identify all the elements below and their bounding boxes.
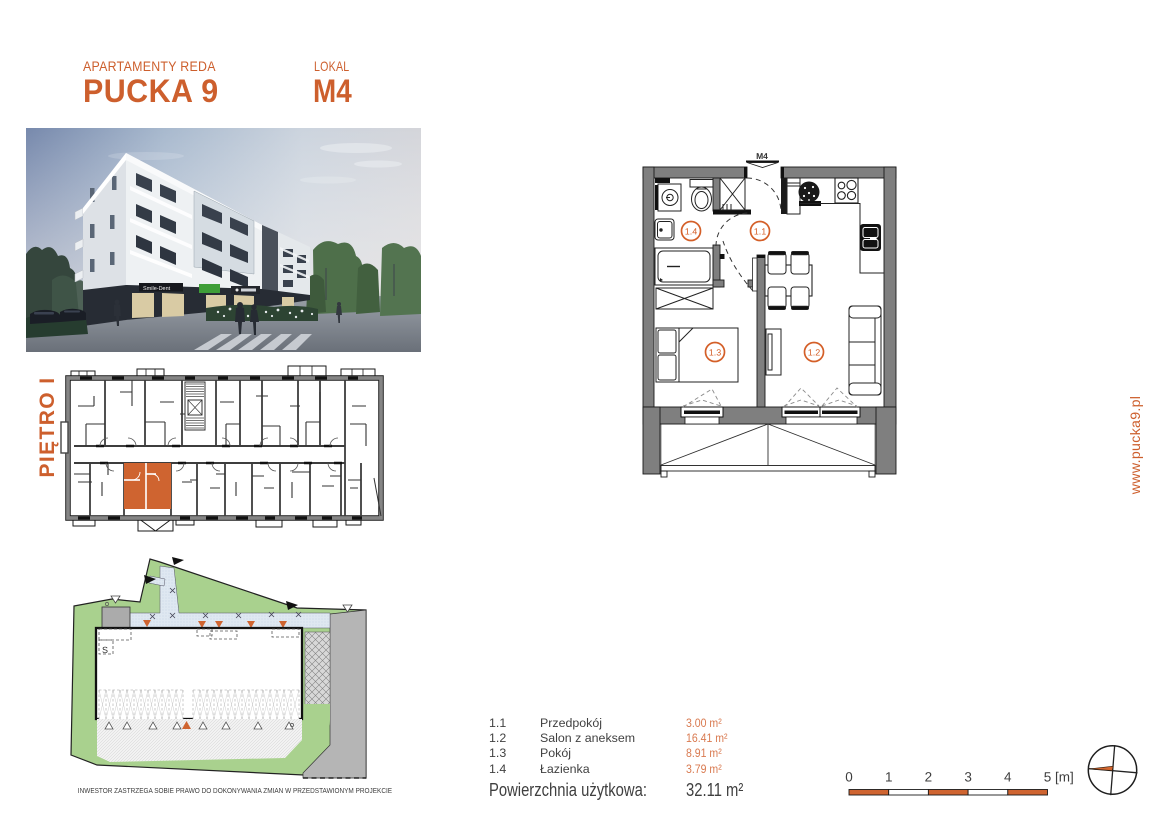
svg-text:0: 0 — [845, 770, 853, 785]
svg-text:1.2: 1.2 — [808, 348, 821, 358]
svg-text:M4: M4 — [756, 151, 768, 161]
svg-text:1.3: 1.3 — [709, 348, 722, 358]
svg-text:1.1: 1.1 — [754, 227, 767, 237]
svg-text:Smile-Dent: Smile-Dent — [143, 286, 171, 292]
svg-text:4: 4 — [1004, 770, 1012, 785]
svg-text:1.4: 1.4 — [685, 227, 698, 237]
svg-text:2: 2 — [925, 770, 933, 785]
svg-text:S: S — [102, 645, 108, 655]
svg-text:5: 5 — [1044, 770, 1052, 785]
svg-text:3: 3 — [964, 770, 972, 785]
svg-text:1: 1 — [885, 770, 893, 785]
svg-text:[m]: [m] — [1055, 770, 1074, 785]
